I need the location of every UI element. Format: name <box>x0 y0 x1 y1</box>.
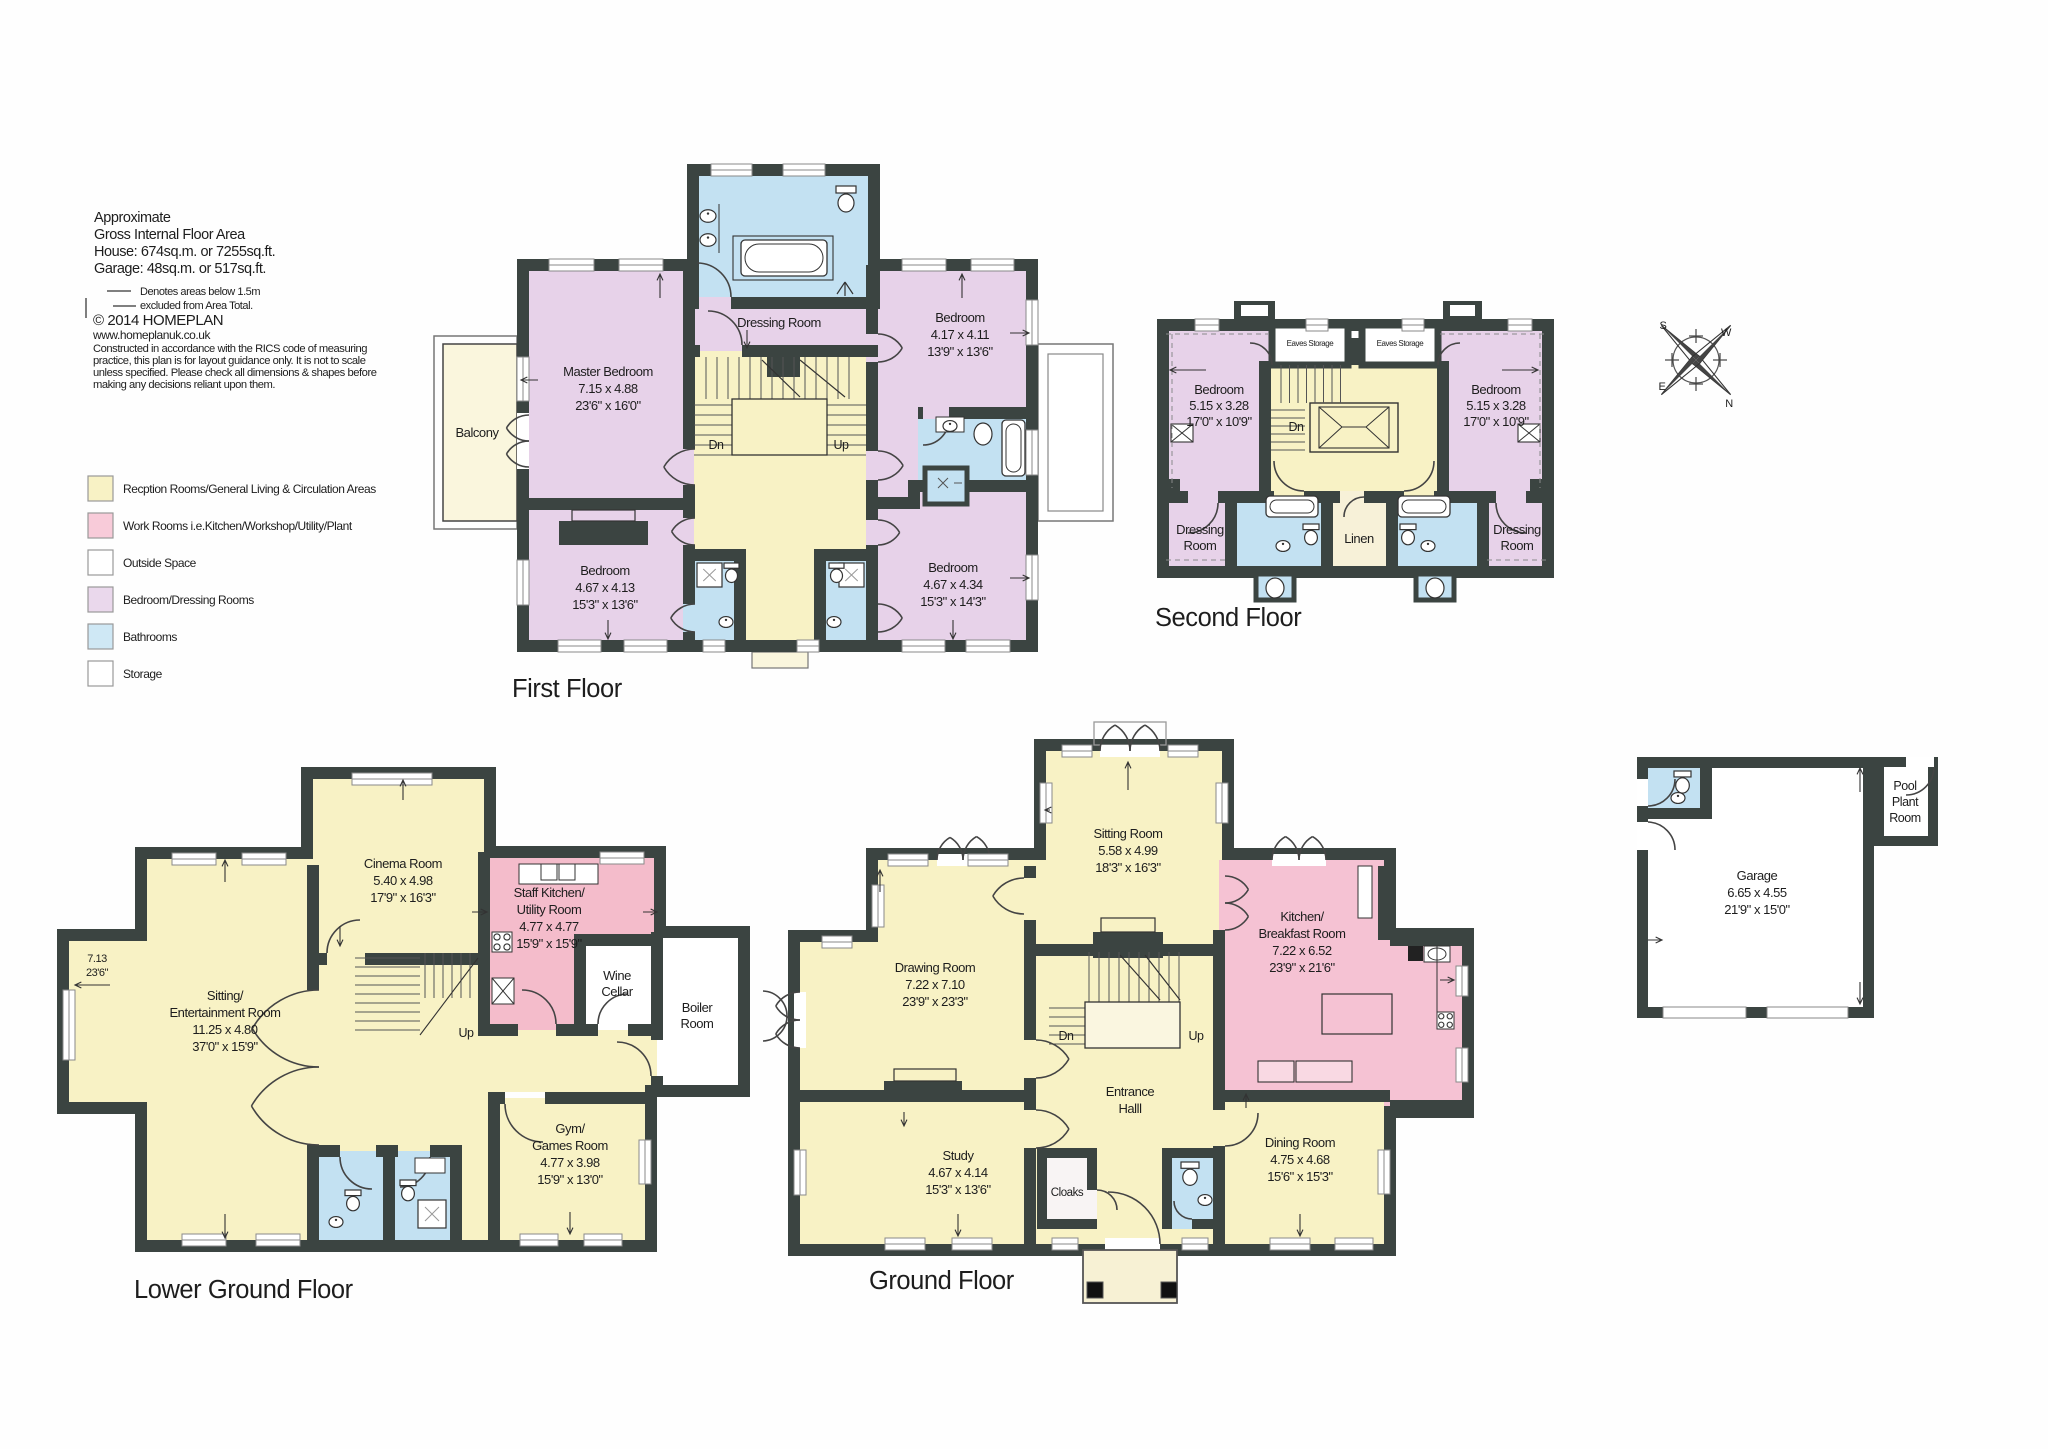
svg-text:18'3" x 16'3": 18'3" x 16'3" <box>1095 860 1161 875</box>
svg-text:4.77 x 4.77: 4.77 x 4.77 <box>519 919 579 934</box>
svg-text:Entrance: Entrance <box>1106 1084 1155 1099</box>
svg-text:Dn: Dn <box>1288 420 1304 434</box>
svg-text:15'9" x 13'0": 15'9" x 13'0" <box>537 1172 603 1187</box>
svg-text:15'3" x 13'6": 15'3" x 13'6" <box>925 1182 991 1197</box>
svg-text:Gross Internal Floor Area: Gross Internal Floor Area <box>94 227 246 243</box>
svg-text:Room: Room <box>1184 538 1217 553</box>
svg-text:House: 674sq.m. or 7255sq.ft.: House: 674sq.m. or 7255sq.ft. <box>94 244 275 260</box>
svg-text:Room: Room <box>681 1016 714 1031</box>
svg-text:23'6" x 16'0": 23'6" x 16'0" <box>575 398 641 413</box>
svg-text:Denotes areas below 1.5m: Denotes areas below 1.5m <box>140 286 260 298</box>
svg-text:23'9" x 21'6": 23'9" x 21'6" <box>1269 960 1335 975</box>
svg-text:Garage: Garage <box>1737 868 1778 883</box>
svg-text:Kitchen/: Kitchen/ <box>1280 909 1324 924</box>
svg-text:Pool: Pool <box>1893 779 1916 793</box>
svg-text:4.75 x 4.68: 4.75 x 4.68 <box>1270 1152 1330 1167</box>
svg-text:7.22 x 7.10: 7.22 x 7.10 <box>905 977 965 992</box>
svg-text:First Floor: First Floor <box>512 675 623 703</box>
svg-text:© 2014 HOMEPLAN: © 2014 HOMEPLAN <box>93 312 223 329</box>
svg-text:S: S <box>1660 320 1667 332</box>
svg-text:Dining Room: Dining Room <box>1265 1135 1335 1150</box>
svg-text:15'6" x 15'3": 15'6" x 15'3" <box>1267 1169 1333 1184</box>
svg-text:Games Room: Games Room <box>532 1138 608 1153</box>
svg-text:15'9" x 15'9": 15'9" x 15'9" <box>516 936 582 951</box>
svg-text:Balcony: Balcony <box>455 425 499 440</box>
svg-text:Work Rooms i.e.Kitchen/Worksho: Work Rooms i.e.Kitchen/Workshop/Utility/… <box>123 519 353 533</box>
svg-text:5.15 x 3.28: 5.15 x 3.28 <box>1189 398 1249 413</box>
svg-text:Sitting/: Sitting/ <box>207 988 244 1003</box>
svg-text:37'0" x 15'9": 37'0" x 15'9" <box>192 1039 258 1054</box>
svg-text:Recption Rooms/General Living: Recption Rooms/General Living & Circulat… <box>123 482 376 496</box>
svg-text:15'3" x 14'3": 15'3" x 14'3" <box>920 594 986 609</box>
svg-text:21'9" x 15'0": 21'9" x 15'0" <box>1724 902 1790 917</box>
svg-text:Lower Ground Floor: Lower Ground Floor <box>134 1276 354 1304</box>
svg-text:Halll: Halll <box>1118 1101 1142 1116</box>
svg-text:15'3" x 13'6": 15'3" x 13'6" <box>572 597 638 612</box>
svg-text:23'9" x 23'3": 23'9" x 23'3" <box>902 994 968 1009</box>
svg-text:4.67 x 4.14: 4.67 x 4.14 <box>928 1165 988 1180</box>
svg-text:Room: Room <box>1501 538 1534 553</box>
svg-text:Cloaks: Cloaks <box>1051 1187 1084 1199</box>
svg-text:7.22 x 6.52: 7.22 x 6.52 <box>1272 943 1332 958</box>
svg-text:Bedroom: Bedroom <box>935 310 985 325</box>
svg-text:excluded from Area Total.: excluded from Area Total. <box>140 300 253 312</box>
svg-text:5.58 x 4.99: 5.58 x 4.99 <box>1098 843 1158 858</box>
svg-text:Drawing Room: Drawing Room <box>895 960 976 975</box>
svg-text:unless specified. Please chec: unless specified. Please check all dimen… <box>93 367 377 379</box>
svg-text:Bedroom: Bedroom <box>1471 382 1521 397</box>
svg-text:E: E <box>1659 381 1666 393</box>
svg-text:Bedroom: Bedroom <box>928 560 978 575</box>
svg-text:4.77 x 3.98: 4.77 x 3.98 <box>540 1155 600 1170</box>
svg-text:Bedroom: Bedroom <box>1194 382 1244 397</box>
svg-text:Up: Up <box>458 1026 474 1040</box>
svg-text:Entertainment Room: Entertainment Room <box>169 1005 280 1020</box>
svg-text:Eaves Storage: Eaves Storage <box>1377 339 1425 348</box>
svg-text:7.15 x 4.88: 7.15 x 4.88 <box>578 381 638 396</box>
svg-text:Cinema Room: Cinema Room <box>364 856 442 871</box>
svg-text:Boiler: Boiler <box>682 1000 714 1015</box>
svg-text:Master Bedroom: Master Bedroom <box>563 364 653 379</box>
svg-text:W: W <box>1721 327 1732 339</box>
svg-text:Up: Up <box>833 438 849 452</box>
svg-text:Second Floor: Second Floor <box>1155 604 1302 632</box>
svg-text:23'6": 23'6" <box>86 967 109 979</box>
svg-text:Garage: 48sq.m. or 517sq.ft.: Garage: 48sq.m. or 517sq.ft. <box>94 261 266 277</box>
svg-text:17'9" x 16'3": 17'9" x 16'3" <box>370 890 436 905</box>
svg-text:making any decisions reliant u: making any decisions reliant upon them. <box>93 379 275 391</box>
svg-text:Storage: Storage <box>123 667 163 681</box>
svg-text:Bedroom/Dressing Rooms: Bedroom/Dressing Rooms <box>123 593 254 607</box>
svg-text:Room: Room <box>1889 811 1921 825</box>
svg-text:17'0" x 10'9": 17'0" x 10'9" <box>1463 414 1529 429</box>
svg-text:13'9" x 13'6": 13'9" x 13'6" <box>927 344 993 359</box>
svg-text:Gym/: Gym/ <box>555 1121 585 1136</box>
svg-text:Cellar: Cellar <box>601 984 633 999</box>
svg-text:Dressing: Dressing <box>1176 522 1224 537</box>
svg-text:Staff Kitchen/: Staff Kitchen/ <box>514 885 586 900</box>
svg-text:Dressing: Dressing <box>1493 522 1541 537</box>
svg-text:Dn: Dn <box>1058 1029 1074 1043</box>
svg-text:5.40 x 4.98: 5.40 x 4.98 <box>373 873 433 888</box>
svg-text:4.17 x 4.11: 4.17 x 4.11 <box>931 327 990 342</box>
svg-text:Study: Study <box>943 1148 975 1163</box>
svg-text:11.25 x 4.80: 11.25 x 4.80 <box>192 1022 257 1037</box>
svg-text:7.13: 7.13 <box>87 953 107 965</box>
svg-text:Sitting Room: Sitting Room <box>1093 826 1162 841</box>
svg-text:Dn: Dn <box>708 438 724 452</box>
svg-text:practice, this plan is for lay: practice, this plan is for layout guidan… <box>93 355 366 367</box>
svg-text:Outside Space: Outside Space <box>123 556 197 570</box>
svg-text:Utility Room: Utility Room <box>517 902 582 917</box>
svg-text:www.homeplanuk.co.uk: www.homeplanuk.co.uk <box>92 328 212 342</box>
svg-text:Up: Up <box>1188 1029 1204 1043</box>
svg-text:4.67 x 4.13: 4.67 x 4.13 <box>575 580 635 595</box>
svg-text:17'0" x 10'9": 17'0" x 10'9" <box>1186 414 1252 429</box>
svg-text:Constructed in accordance with: Constructed in accordance with the RICS … <box>93 343 367 355</box>
svg-text:Breakfast Room: Breakfast Room <box>1259 926 1346 941</box>
svg-text:Bathrooms: Bathrooms <box>123 630 177 644</box>
svg-text:N: N <box>1725 398 1733 410</box>
svg-text:Approximate: Approximate <box>94 210 171 226</box>
svg-text:Eaves Storage: Eaves Storage <box>1287 339 1335 348</box>
svg-text:Bedroom: Bedroom <box>580 563 630 578</box>
svg-text:6.65 x 4.55: 6.65 x 4.55 <box>1727 885 1787 900</box>
svg-text:Ground Floor: Ground Floor <box>869 1267 1015 1295</box>
svg-text:Wine: Wine <box>603 968 631 983</box>
svg-text:Linen: Linen <box>1344 531 1374 546</box>
svg-text:Plant: Plant <box>1892 795 1919 809</box>
svg-text:5.15 x 3.28: 5.15 x 3.28 <box>1466 398 1526 413</box>
svg-text:Dressing Room: Dressing Room <box>737 315 821 330</box>
svg-text:4.67 x 4.34: 4.67 x 4.34 <box>923 577 983 592</box>
